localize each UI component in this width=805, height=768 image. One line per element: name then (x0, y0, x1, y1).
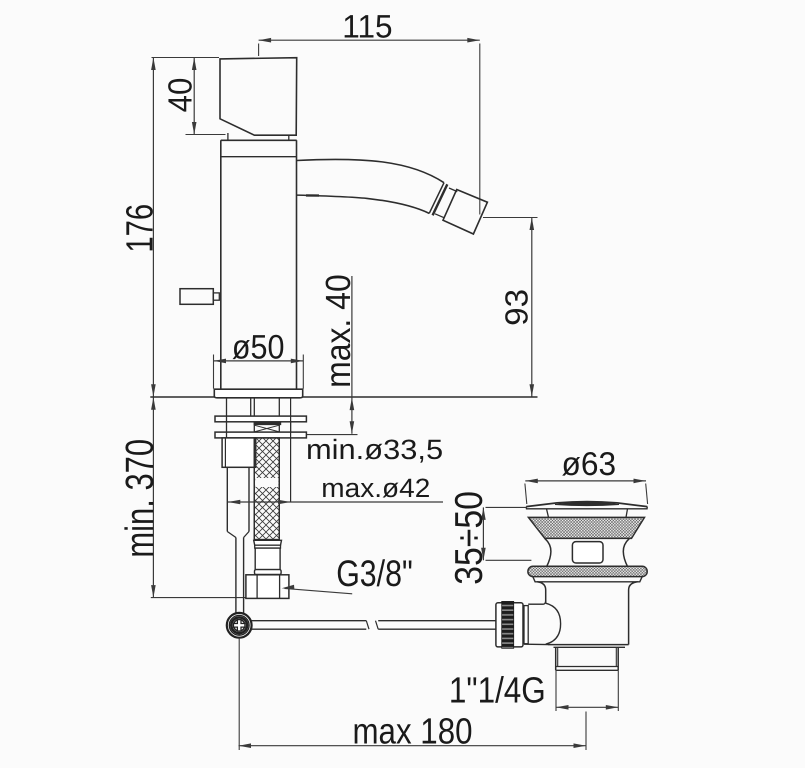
svg-text:93: 93 (498, 289, 534, 326)
svg-text:ø50: ø50 (232, 328, 285, 366)
svg-text:G3/8": G3/8" (336, 553, 413, 594)
svg-text:ø63: ø63 (562, 445, 617, 482)
svg-text:min.ø33,5: min.ø33,5 (306, 434, 443, 465)
svg-text:min. 370: min. 370 (118, 439, 162, 558)
svg-text:35÷50: 35÷50 (448, 491, 491, 585)
svg-text:1"1/4G: 1"1/4G (449, 670, 546, 711)
svg-text:40: 40 (163, 78, 200, 113)
svg-text:176: 176 (120, 204, 162, 253)
svg-text:max.ø42: max.ø42 (321, 473, 430, 503)
svg-text:115: 115 (342, 9, 392, 45)
svg-text:max 180: max 180 (353, 710, 473, 751)
svg-text:max. 40: max. 40 (319, 274, 358, 388)
